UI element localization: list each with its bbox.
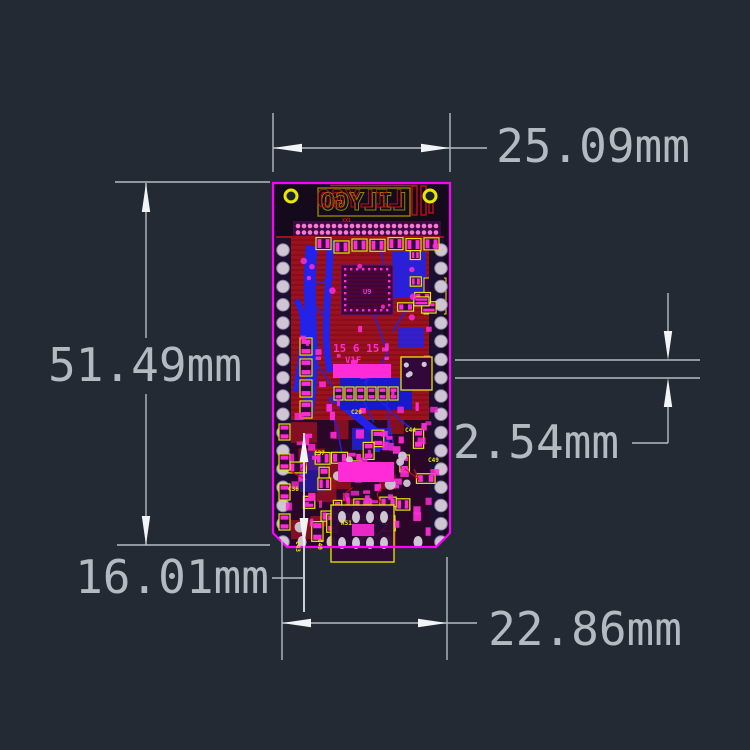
dimension-top-width: 25.09mm <box>273 113 690 173</box>
silk-label: C36 <box>288 486 299 493</box>
silk-label: C44 <box>405 427 416 434</box>
dim-top-width-label: 25.09mm <box>496 119 690 173</box>
silk-label: U9 <box>363 288 371 296</box>
pcb-board: LILYGOLILYGO15 6 15V1FU9XX1C20C37C44C36C… <box>273 183 450 562</box>
arrow-down-icon <box>664 331 672 360</box>
mounting-hole <box>424 190 436 202</box>
arrow-down-icon <box>142 516 150 545</box>
silk-label: C49 <box>428 457 439 464</box>
dim-bottom-offset-label: 16.01mm <box>75 550 269 604</box>
dim-bottom-width-label: 22.86mm <box>488 602 682 656</box>
silk-label: XX1 <box>342 218 351 224</box>
dimension-left-height: 51.49mm <box>48 182 270 545</box>
logo-text-mirrored: LILYGO <box>317 185 404 213</box>
dimension-right-pitch: 2.54mm <box>453 293 700 469</box>
dim-left-height-label: 51.49mm <box>48 338 242 392</box>
arrow-up-icon <box>664 378 672 407</box>
silk-label: V1F <box>345 356 361 366</box>
arrow-up-icon <box>142 183 150 212</box>
arrow-left-icon <box>282 619 311 627</box>
silk-label: C37 <box>314 450 325 457</box>
mounting-hole <box>285 190 297 202</box>
arrow-right-icon <box>418 619 447 627</box>
cad-canvas: LILYGOLILYGO15 6 15V1FU9XX1C20C37C44C36C… <box>0 0 750 750</box>
arrow-left-icon <box>273 144 302 152</box>
arrow-right-icon <box>421 144 450 152</box>
dim-right-pitch-label: 2.54mm <box>453 415 619 469</box>
silk-label: 15 6 15 <box>333 342 379 355</box>
pcb-dimension-drawing: LILYGOLILYGO15 6 15V1FU9XX1C20C37C44C36C… <box>0 0 750 750</box>
silk-label: C40 <box>316 539 323 550</box>
silk-label: C20 <box>351 409 362 416</box>
silk-label: C43 <box>294 541 301 552</box>
silk-label: R51 <box>341 520 352 527</box>
